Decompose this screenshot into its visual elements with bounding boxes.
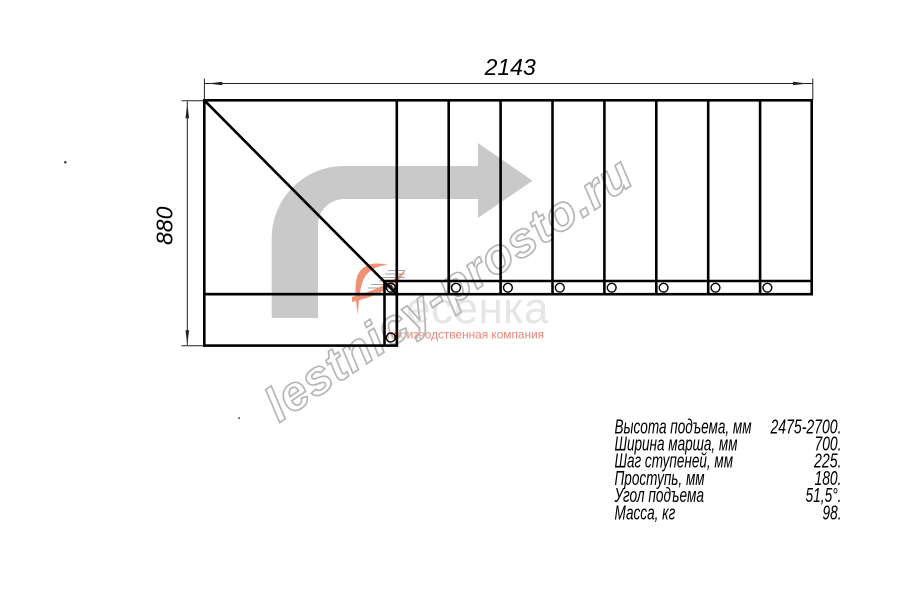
svg-text:98.: 98. — [823, 502, 842, 524]
svg-text:Масса, кг: Масса, кг — [615, 502, 676, 524]
svg-text:2143: 2143 — [484, 54, 536, 80]
svg-text:880: 880 — [152, 206, 178, 245]
